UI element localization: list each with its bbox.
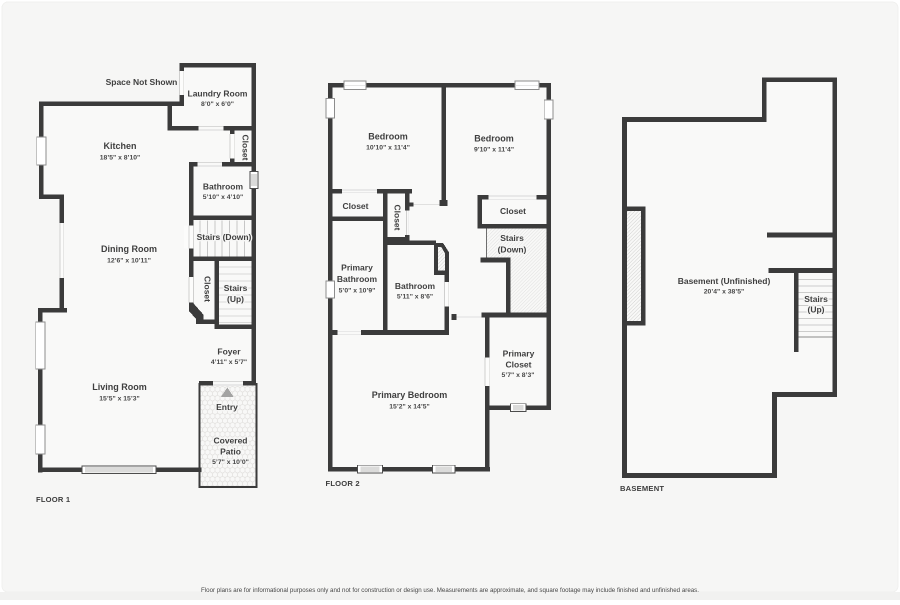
svg-text:Bathroom: Bathroom: [337, 274, 378, 284]
svg-text:Stairs (Down): Stairs (Down): [197, 232, 252, 242]
svg-text:Laundry Room: Laundry Room: [188, 89, 248, 99]
svg-text:5’7" x 8’3": 5’7" x 8’3": [502, 372, 535, 379]
svg-text:Living Room: Living Room: [92, 382, 147, 392]
svg-text:(Up): (Up): [227, 294, 244, 304]
svg-text:FLOOR 1: FLOOR 1: [36, 495, 71, 504]
svg-text:(Up): (Up): [808, 305, 825, 315]
svg-text:FLOOR 2: FLOOR 2: [326, 479, 360, 488]
svg-text:5’0" x 10’9": 5’0" x 10’9": [339, 288, 376, 295]
svg-text:15’5" x 15’3": 15’5" x 15’3": [99, 396, 139, 403]
svg-text:8’0" x 6’0": 8’0" x 6’0": [201, 101, 234, 108]
svg-text:Basement (Unfinished): Basement (Unfinished): [678, 276, 771, 286]
svg-text:Covered: Covered: [213, 436, 247, 446]
svg-text:Closet: Closet: [203, 276, 213, 302]
svg-text:9’10" x 11’4": 9’10" x 11’4": [474, 147, 514, 154]
svg-text:18’5" x 8’10": 18’5" x 8’10": [100, 155, 140, 162]
svg-text:Bedroom: Bedroom: [368, 132, 408, 142]
svg-text:Bedroom: Bedroom: [474, 134, 514, 144]
svg-text:Bathroom: Bathroom: [203, 182, 244, 192]
svg-text:Closet: Closet: [343, 201, 369, 211]
svg-text:Primary Bedroom: Primary Bedroom: [372, 390, 448, 400]
svg-text:4’11" x 5’7": 4’11" x 5’7": [211, 359, 247, 366]
svg-text:Bathroom: Bathroom: [395, 281, 436, 291]
svg-text:15’2" x 14’5": 15’2" x 14’5": [389, 404, 429, 411]
svg-text:Floor plans are for informatio: Floor plans are for informational purpos…: [201, 587, 699, 594]
svg-text:BASEMENT: BASEMENT: [620, 484, 664, 493]
svg-text:5’7" x 10’0": 5’7" x 10’0": [212, 459, 249, 466]
svg-text:Stairs: Stairs: [224, 283, 248, 293]
svg-text:Closet: Closet: [500, 206, 526, 216]
svg-text:Entry: Entry: [216, 402, 238, 412]
svg-text:Patio: Patio: [220, 447, 241, 457]
svg-text:Closet: Closet: [506, 360, 532, 370]
svg-text:5’10" x 4’10": 5’10" x 4’10": [203, 194, 243, 201]
svg-text:Primary: Primary: [341, 263, 373, 273]
svg-text:Foyer: Foyer: [217, 347, 241, 357]
svg-text:Space Not Shown: Space Not Shown: [106, 77, 178, 87]
svg-text:5’11" x 8’6": 5’11" x 8’6": [397, 294, 433, 301]
svg-text:20’4" x 38’5": 20’4" x 38’5": [704, 289, 744, 296]
svg-text:Stairs: Stairs: [500, 233, 524, 243]
svg-text:Primary: Primary: [503, 349, 535, 359]
svg-text:Closet: Closet: [241, 135, 251, 161]
svg-text:Closet: Closet: [393, 205, 403, 231]
svg-text:10’10" x 11’4": 10’10" x 11’4": [366, 145, 410, 152]
svg-text:12’6" x 10’11": 12’6" x 10’11": [107, 258, 151, 265]
svg-text:Kitchen: Kitchen: [103, 141, 136, 151]
svg-text:(Down): (Down): [498, 245, 527, 255]
svg-text:Dining Room: Dining Room: [101, 244, 157, 254]
svg-text:Stairs: Stairs: [804, 294, 828, 304]
